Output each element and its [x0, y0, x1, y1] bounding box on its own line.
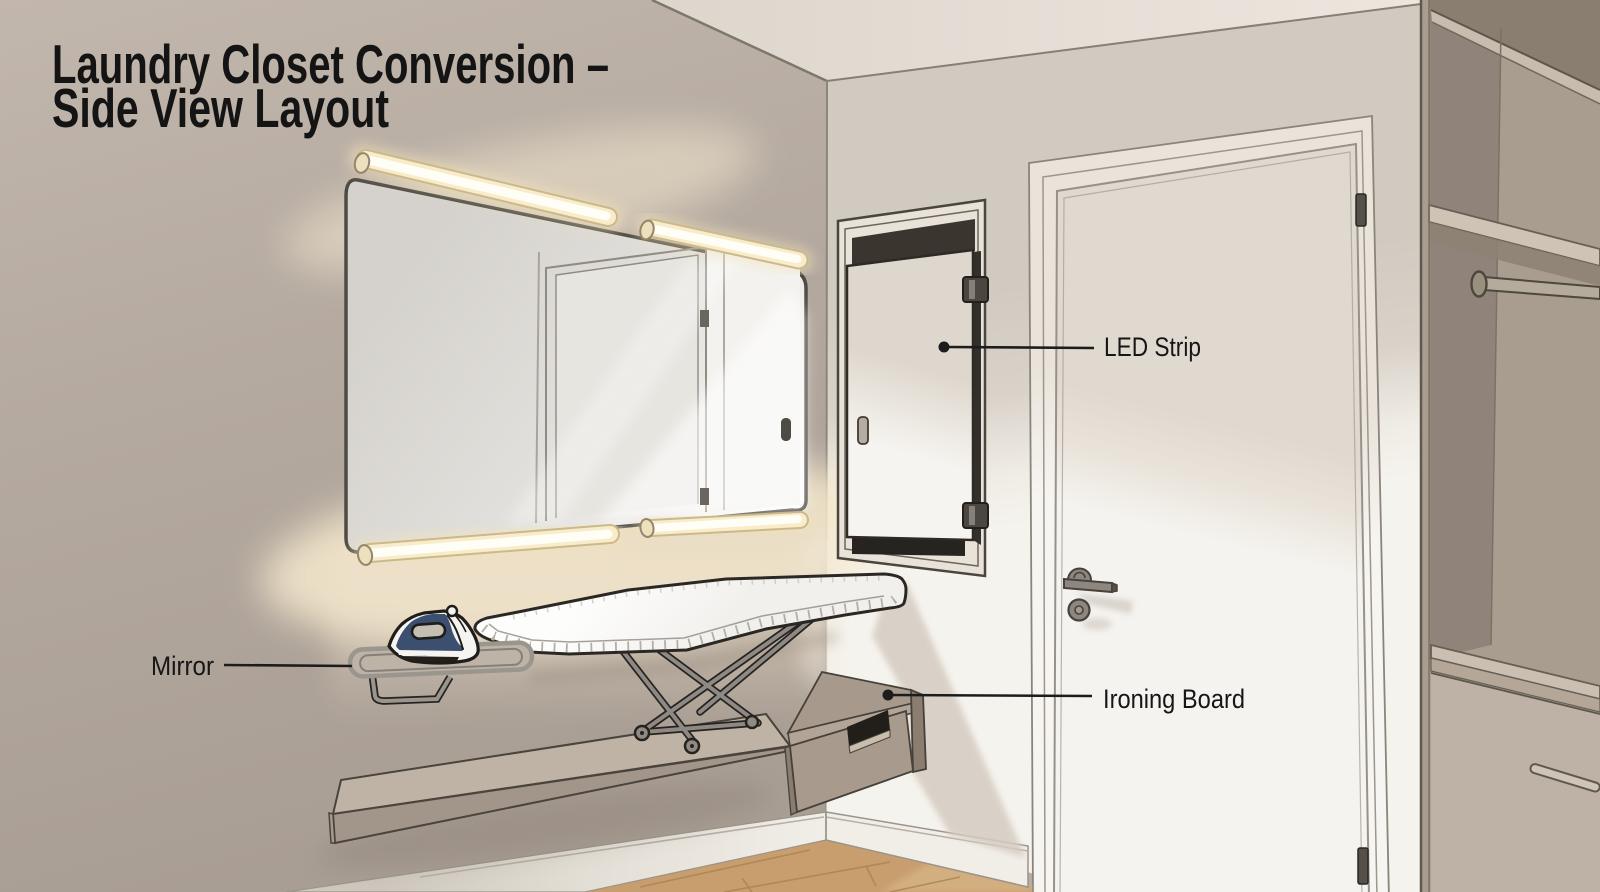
svg-text:Mirror: Mirror: [151, 651, 214, 681]
svg-text:LED Strip: LED Strip: [1104, 332, 1201, 362]
svg-text:Side View Layout: Side View Layout: [52, 77, 389, 139]
svg-text:Ironing Board: Ironing Board: [1103, 684, 1245, 714]
